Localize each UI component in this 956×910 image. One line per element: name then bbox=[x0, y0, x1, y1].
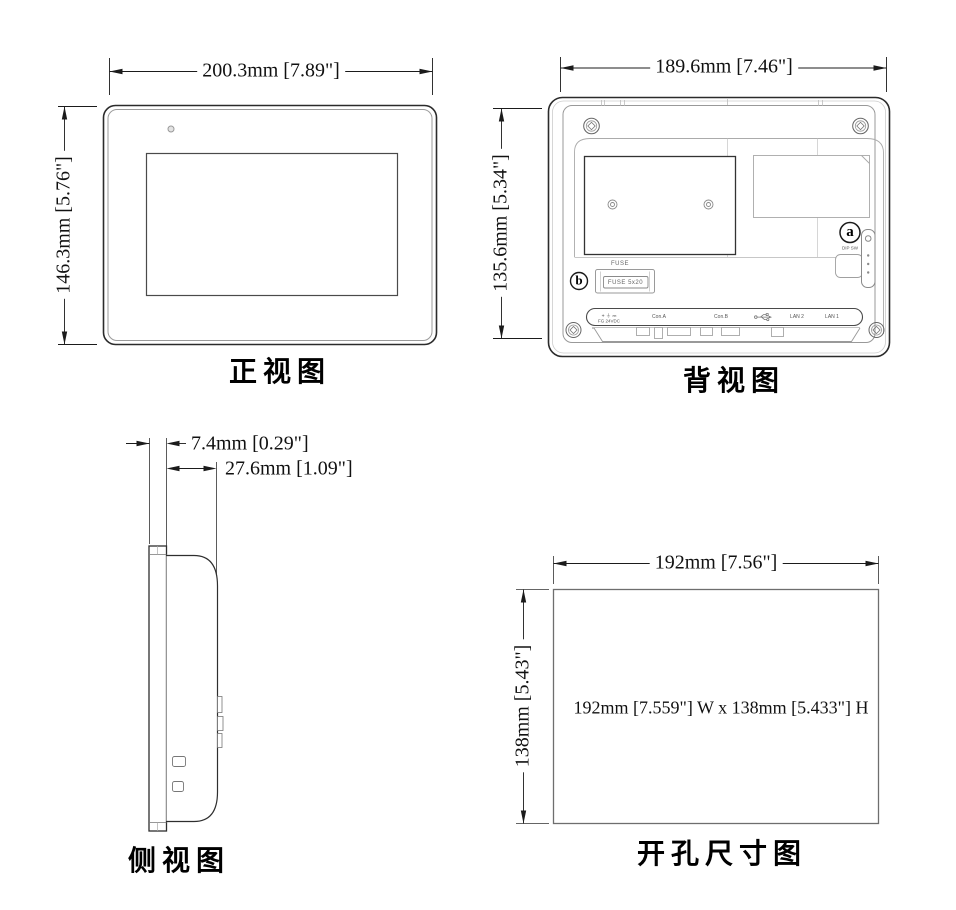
drawing-linework bbox=[0, 0, 956, 910]
cutout-size-note: 192mm [7.559"] W x 138mm [5.433"] H bbox=[573, 698, 868, 719]
sd-cover bbox=[836, 255, 863, 278]
dip-sw-label: DIP SW bbox=[842, 246, 858, 251]
side-bezel-dim-lines bbox=[126, 441, 186, 446]
side-depth-dim-lines bbox=[167, 466, 217, 471]
back-view bbox=[493, 57, 890, 357]
dip-switch bbox=[862, 230, 876, 288]
side-connector-bumps bbox=[218, 697, 224, 748]
front-view-caption: 正视图 bbox=[229, 350, 331, 390]
dimension-drawing: 200.3mm [7.89"] 146.3mm [5.76"] 正视图 189.… bbox=[0, 0, 956, 910]
front-panel-outline bbox=[104, 106, 437, 345]
side-depth-dimension: 27.6mm [1.09"] bbox=[222, 458, 356, 481]
back-width-dimension: 189.6mm [7.46"] bbox=[650, 56, 798, 79]
cutout-width-dimension: 192mm [7.56"] bbox=[650, 552, 783, 575]
cutout-view bbox=[516, 556, 879, 824]
power-led-icon bbox=[168, 126, 174, 132]
power-fg-24vdc-label: FG 24VDC bbox=[598, 318, 620, 323]
con-b-label: Con.B bbox=[714, 314, 728, 320]
lan1-label: LAN 1 bbox=[825, 314, 839, 320]
side-view-caption: 侧视图 bbox=[128, 839, 230, 879]
side-bezel-dimension: 7.4mm [0.29"] bbox=[188, 433, 312, 456]
cutout-height-dimension: 138mm [5.43"] bbox=[512, 640, 535, 773]
front-screen bbox=[147, 154, 398, 296]
lan2-label: LAN 2 bbox=[790, 314, 804, 320]
cutout-view-caption: 开孔尺寸图 bbox=[637, 832, 807, 872]
fuse-value: FUSE 5x20 bbox=[608, 280, 643, 286]
front-view bbox=[58, 58, 437, 345]
interface-cover bbox=[754, 156, 870, 218]
front-panel-inner-line bbox=[108, 110, 432, 341]
fuse-title: FUSE bbox=[611, 261, 629, 267]
front-width-dimension: 200.3mm [7.89"] bbox=[197, 60, 345, 83]
front-height-dimension: 146.3mm [5.76"] bbox=[53, 151, 76, 299]
side-view bbox=[126, 438, 223, 831]
callout-b-label: b bbox=[575, 273, 582, 289]
con-a-label: Con.A bbox=[652, 314, 666, 320]
back-height-dimension: 135.6mm [5.34"] bbox=[490, 149, 513, 297]
side-bezel-profile bbox=[149, 546, 167, 831]
callout-a-label: a bbox=[846, 224, 854, 241]
cutout-extension-lines bbox=[516, 556, 879, 824]
back-view-caption: 背视图 bbox=[683, 359, 785, 399]
